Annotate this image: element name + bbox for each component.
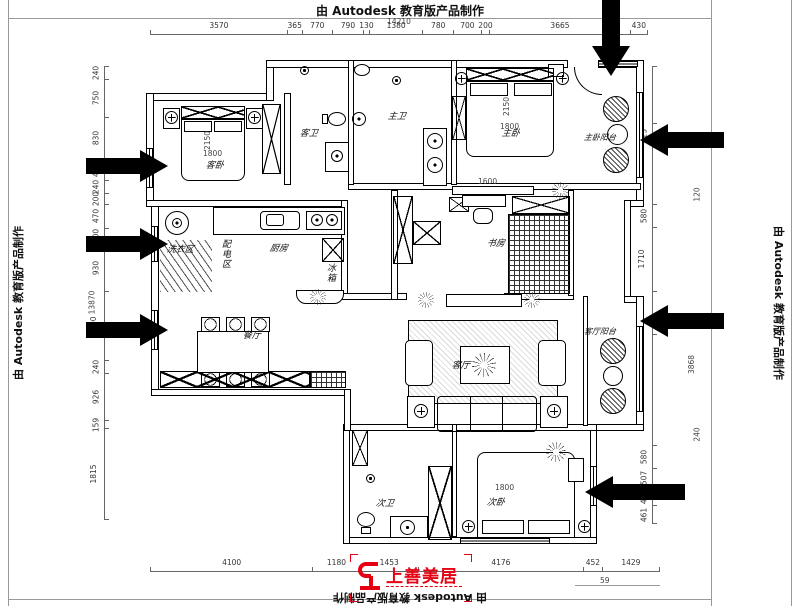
sofa — [437, 396, 537, 432]
dimension-segment: 365 — [287, 30, 302, 35]
room-label-dining: 餐厅 — [242, 328, 262, 341]
dimension-label: 461 — [639, 507, 648, 521]
dimension-label: 1180 — [327, 558, 346, 567]
dimension-segment: 4100 — [150, 567, 312, 572]
dimension-label: 1710 — [637, 250, 646, 269]
cabinet-dim: 1600 — [478, 177, 497, 186]
dimension-label: 830 — [91, 131, 100, 145]
dimension-segment: 240 — [104, 66, 109, 79]
dimension-label: 430 — [632, 21, 646, 30]
kitchen-sink-basin — [266, 214, 284, 226]
dimension-label: 780 — [431, 21, 445, 30]
plant-icon — [472, 353, 496, 377]
room-label-master-balcony: 主卧阳台 — [583, 132, 617, 143]
frame-line — [8, 0, 9, 606]
window — [460, 538, 550, 544]
room-label-kitchen: 厨房 — [269, 241, 289, 254]
wall — [624, 200, 631, 302]
fridge — [322, 238, 344, 262]
wall — [343, 424, 350, 544]
dimension-segment: 200 — [104, 193, 109, 204]
toilet-tank — [361, 527, 371, 534]
dimension-segment: 430 — [630, 30, 648, 35]
arrow-icon — [640, 305, 724, 337]
dimension-label: 240 — [91, 360, 100, 374]
dimension-label: 580 — [639, 209, 648, 223]
flower-icon — [462, 520, 475, 533]
dimension-segment: 1429 — [602, 567, 660, 572]
arrow-icon — [585, 476, 685, 509]
potted-plant-icon — [600, 338, 626, 364]
room-label-study: 书房 — [486, 236, 506, 249]
window — [636, 326, 643, 412]
dining-chair — [226, 317, 245, 332]
dimension-chain-left: 2407508304102402004703009301390240926159… — [104, 66, 109, 520]
dining-chair — [251, 372, 270, 387]
plant-icon — [546, 442, 566, 462]
dimension-label: 3665 — [550, 21, 569, 30]
armchair — [405, 340, 433, 386]
dimension-segment: 750 — [104, 79, 109, 117]
plant-icon — [524, 292, 540, 308]
wall — [284, 93, 291, 185]
dimension-label: 365 — [288, 21, 302, 30]
room-label-master-bath: 主卫 — [387, 109, 407, 122]
dimension-chain-top: 357036577079013013807807002003665430 — [150, 30, 648, 35]
dimension-label: 240 — [693, 427, 702, 441]
dimension-label: 580 — [639, 450, 648, 464]
toilet — [357, 512, 375, 527]
desk-chair — [473, 208, 493, 224]
dimension-segment: 1710 — [652, 227, 657, 291]
flower-icon — [556, 72, 569, 85]
dimension-label: 59 — [600, 576, 610, 585]
flower-icon — [578, 520, 591, 533]
plant-stand — [568, 458, 584, 482]
logo-underline — [386, 586, 462, 587]
room-label-second-bath: 次卫 — [375, 496, 395, 509]
dimension-label: 4176 — [491, 558, 510, 567]
cabinet — [310, 371, 346, 388]
dining-chair — [226, 372, 245, 387]
arrow-icon — [86, 314, 168, 346]
potted-plant-icon — [600, 388, 626, 414]
room-label-living: 客厅 — [451, 358, 471, 371]
armchair — [538, 340, 566, 386]
autodesk-banner-right: 由 Autodesk 教育版产品制作 — [771, 226, 787, 380]
dimension-segment: 240 — [104, 360, 109, 373]
dimension-label: 1429 — [621, 558, 640, 567]
bed-dim: 2150 — [203, 131, 212, 150]
dimension-total-left: 13870 — [87, 291, 96, 315]
dimension-segment: 452 — [583, 567, 602, 572]
arrow-icon — [86, 150, 168, 182]
logo-text: 上善美居 — [386, 562, 458, 587]
dining-chair — [201, 372, 220, 387]
wall — [151, 389, 351, 396]
basin — [400, 520, 415, 535]
arrow-icon — [86, 228, 168, 260]
room-label-master-bedroom: 主卧 — [501, 126, 521, 139]
toilet — [354, 64, 370, 76]
room-label-power-area: 配电区 — [222, 240, 232, 270]
autodesk-banner-left: 由 Autodesk 教育版产品制作 — [10, 226, 26, 380]
flower-icon — [248, 111, 261, 124]
basin — [352, 112, 366, 126]
room-label-second-bedroom: 次卧 — [486, 495, 506, 508]
basin — [427, 133, 443, 149]
dimension-label: 120 — [693, 187, 702, 201]
room-label-guest-bedroom: 客卧 — [205, 158, 225, 171]
dimension-segment: 3010 — [652, 334, 657, 446]
tv-cabinet — [452, 186, 534, 195]
frame-line — [711, 0, 712, 606]
company-logo: 上善美居 — [350, 554, 472, 602]
room-label-guest-bath: 客卫 — [299, 126, 319, 139]
dimension-segment: 200 — [481, 30, 490, 35]
wall — [266, 60, 568, 68]
wardrobe — [181, 106, 245, 119]
arrow-icon — [592, 0, 630, 76]
dimension-label: 1380 — [387, 21, 406, 30]
dimension-segment: 1815 — [104, 428, 109, 520]
washer-drum-icon — [172, 218, 182, 228]
flower-icon — [414, 404, 428, 418]
dimension-label: 930 — [91, 260, 100, 274]
tv-cabinet — [446, 294, 522, 307]
floor-plan-drawing: { "banner": { "top": "由 Autodesk 教育版产品制作… — [0, 0, 800, 606]
arrow-icon — [640, 124, 724, 156]
plant-icon — [552, 182, 569, 199]
burner-icon — [311, 214, 323, 226]
dimension-segment: 580 — [652, 204, 657, 226]
dimension-line — [575, 585, 660, 586]
pillow — [514, 83, 552, 96]
potted-plant-icon — [603, 96, 629, 122]
washing-machine — [603, 366, 623, 386]
dimension-segment: 3570 — [150, 30, 287, 35]
bed-dim: 1800 — [203, 149, 222, 158]
potted-plant-icon — [603, 147, 629, 173]
dimension-label: 3570 — [209, 21, 228, 30]
dimension-label: 130 — [359, 21, 373, 30]
dimension-label: 159 — [91, 417, 100, 431]
desk — [462, 195, 506, 207]
wall — [452, 424, 457, 537]
dimension-label: 700 — [460, 21, 474, 30]
cabinet — [452, 96, 466, 140]
room-label-laundry: 洗衣区 — [166, 242, 195, 255]
cabinet — [413, 221, 441, 245]
dimension-segment: 470 — [104, 204, 109, 228]
toilet-tank — [322, 114, 328, 124]
dimension-label: 200 — [478, 21, 492, 30]
wardrobe — [262, 104, 281, 174]
plant-icon — [418, 292, 434, 308]
ceiling-light-icon — [366, 474, 375, 483]
dimension-segment: 780 — [422, 30, 453, 35]
pillow — [214, 121, 242, 132]
bed-dim: 2150 — [502, 97, 511, 116]
dimension-segment: 1530 — [652, 66, 657, 123]
wardrobe — [428, 466, 452, 540]
burner-icon — [326, 214, 338, 226]
dimension-label: 452 — [586, 558, 600, 567]
shangshan-logo-icon — [354, 560, 384, 592]
dimension-label: 1815 — [89, 465, 98, 484]
wall — [590, 424, 644, 431]
dimension-segment: 700 — [453, 30, 481, 35]
dimension-segment: 790 — [332, 30, 363, 35]
dimension-segment: 580 — [652, 445, 657, 467]
wall — [146, 200, 348, 207]
flower-icon — [455, 72, 468, 85]
logo-corner — [464, 594, 472, 602]
dimension-label: 926 — [91, 390, 100, 404]
frame-line — [791, 0, 792, 606]
dimension-label: 750 — [91, 91, 100, 105]
flower-icon — [165, 111, 178, 124]
dimension-label: 200 — [91, 192, 100, 206]
pillow — [482, 520, 524, 534]
wardrobe — [466, 68, 554, 81]
logo-corner — [350, 594, 358, 602]
basin — [427, 157, 443, 173]
dimension-label: 4100 — [222, 558, 241, 567]
bed-dim: 1800 — [495, 483, 514, 492]
room-label-living-balcony: 客厅阳台 — [583, 326, 617, 337]
dining-chair — [201, 317, 220, 332]
tatami-platform — [508, 214, 570, 294]
shelf — [352, 430, 368, 466]
ceiling-light-icon — [392, 76, 401, 85]
dimension-label: 470 — [91, 209, 100, 223]
wall — [146, 93, 274, 101]
logo-corner — [464, 554, 472, 562]
toilet — [328, 112, 346, 126]
drain-icon — [331, 150, 343, 162]
flower-icon — [547, 404, 561, 418]
pillow — [528, 520, 570, 534]
dimension-label: 790 — [341, 21, 355, 30]
bookcase — [393, 196, 413, 264]
pillow — [470, 83, 508, 96]
wall — [583, 296, 588, 426]
dimension-total-right: 3868 — [687, 355, 696, 374]
ceiling-light-icon — [300, 66, 309, 75]
label-fridge: 冰箱 — [327, 264, 337, 284]
dimension-label: 240 — [91, 66, 100, 80]
dimension-segment: 159 — [104, 420, 109, 429]
plant-icon — [310, 289, 326, 305]
dimension-segment: 926 — [104, 373, 109, 420]
dimension-label: 770 — [310, 21, 324, 30]
dimension-segment: 1380 — [369, 30, 422, 35]
dimension-segment: 770 — [302, 30, 332, 35]
wall — [344, 389, 351, 431]
